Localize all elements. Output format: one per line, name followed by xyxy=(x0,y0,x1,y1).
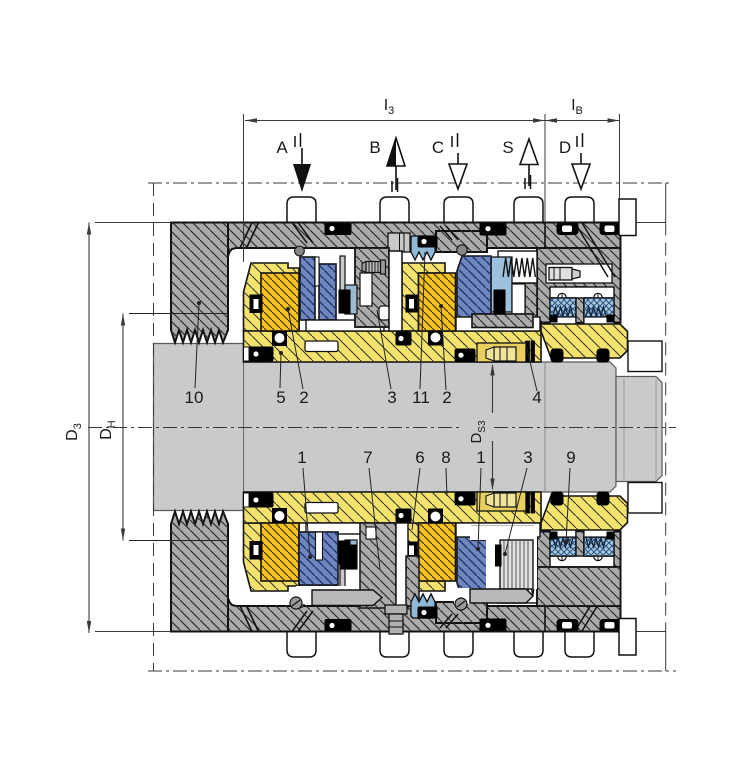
svg-text:2: 2 xyxy=(299,388,308,407)
svg-text:4: 4 xyxy=(532,388,541,407)
svg-text:9: 9 xyxy=(566,448,575,467)
svg-text:B: B xyxy=(369,138,380,157)
svg-text:5: 5 xyxy=(276,388,285,407)
svg-text:3: 3 xyxy=(523,448,532,467)
svg-text:S: S xyxy=(502,138,513,157)
svg-text:C: C xyxy=(432,138,444,157)
svg-text:2: 2 xyxy=(442,388,451,407)
svg-text:6: 6 xyxy=(415,448,424,467)
svg-text:7: 7 xyxy=(363,448,372,467)
svg-text:3: 3 xyxy=(387,388,396,407)
svg-text:1: 1 xyxy=(476,448,485,467)
svg-text:D: D xyxy=(559,138,571,157)
svg-text:1: 1 xyxy=(297,448,306,467)
svg-text:A: A xyxy=(276,138,288,157)
svg-text:10: 10 xyxy=(185,388,204,407)
svg-text:8: 8 xyxy=(441,448,450,467)
svg-text:11: 11 xyxy=(412,388,430,407)
